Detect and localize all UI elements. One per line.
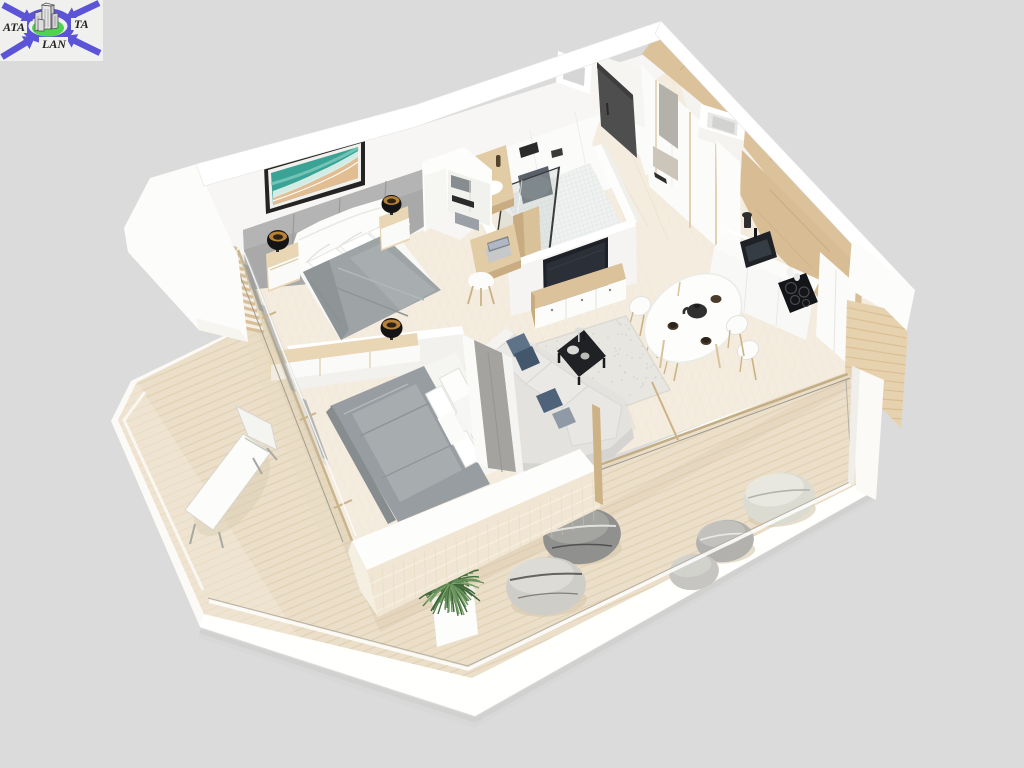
svg-text:LAN: LAN: [41, 37, 67, 51]
svg-text:ATA: ATA: [2, 20, 25, 34]
svg-text:TA: TA: [74, 17, 89, 31]
